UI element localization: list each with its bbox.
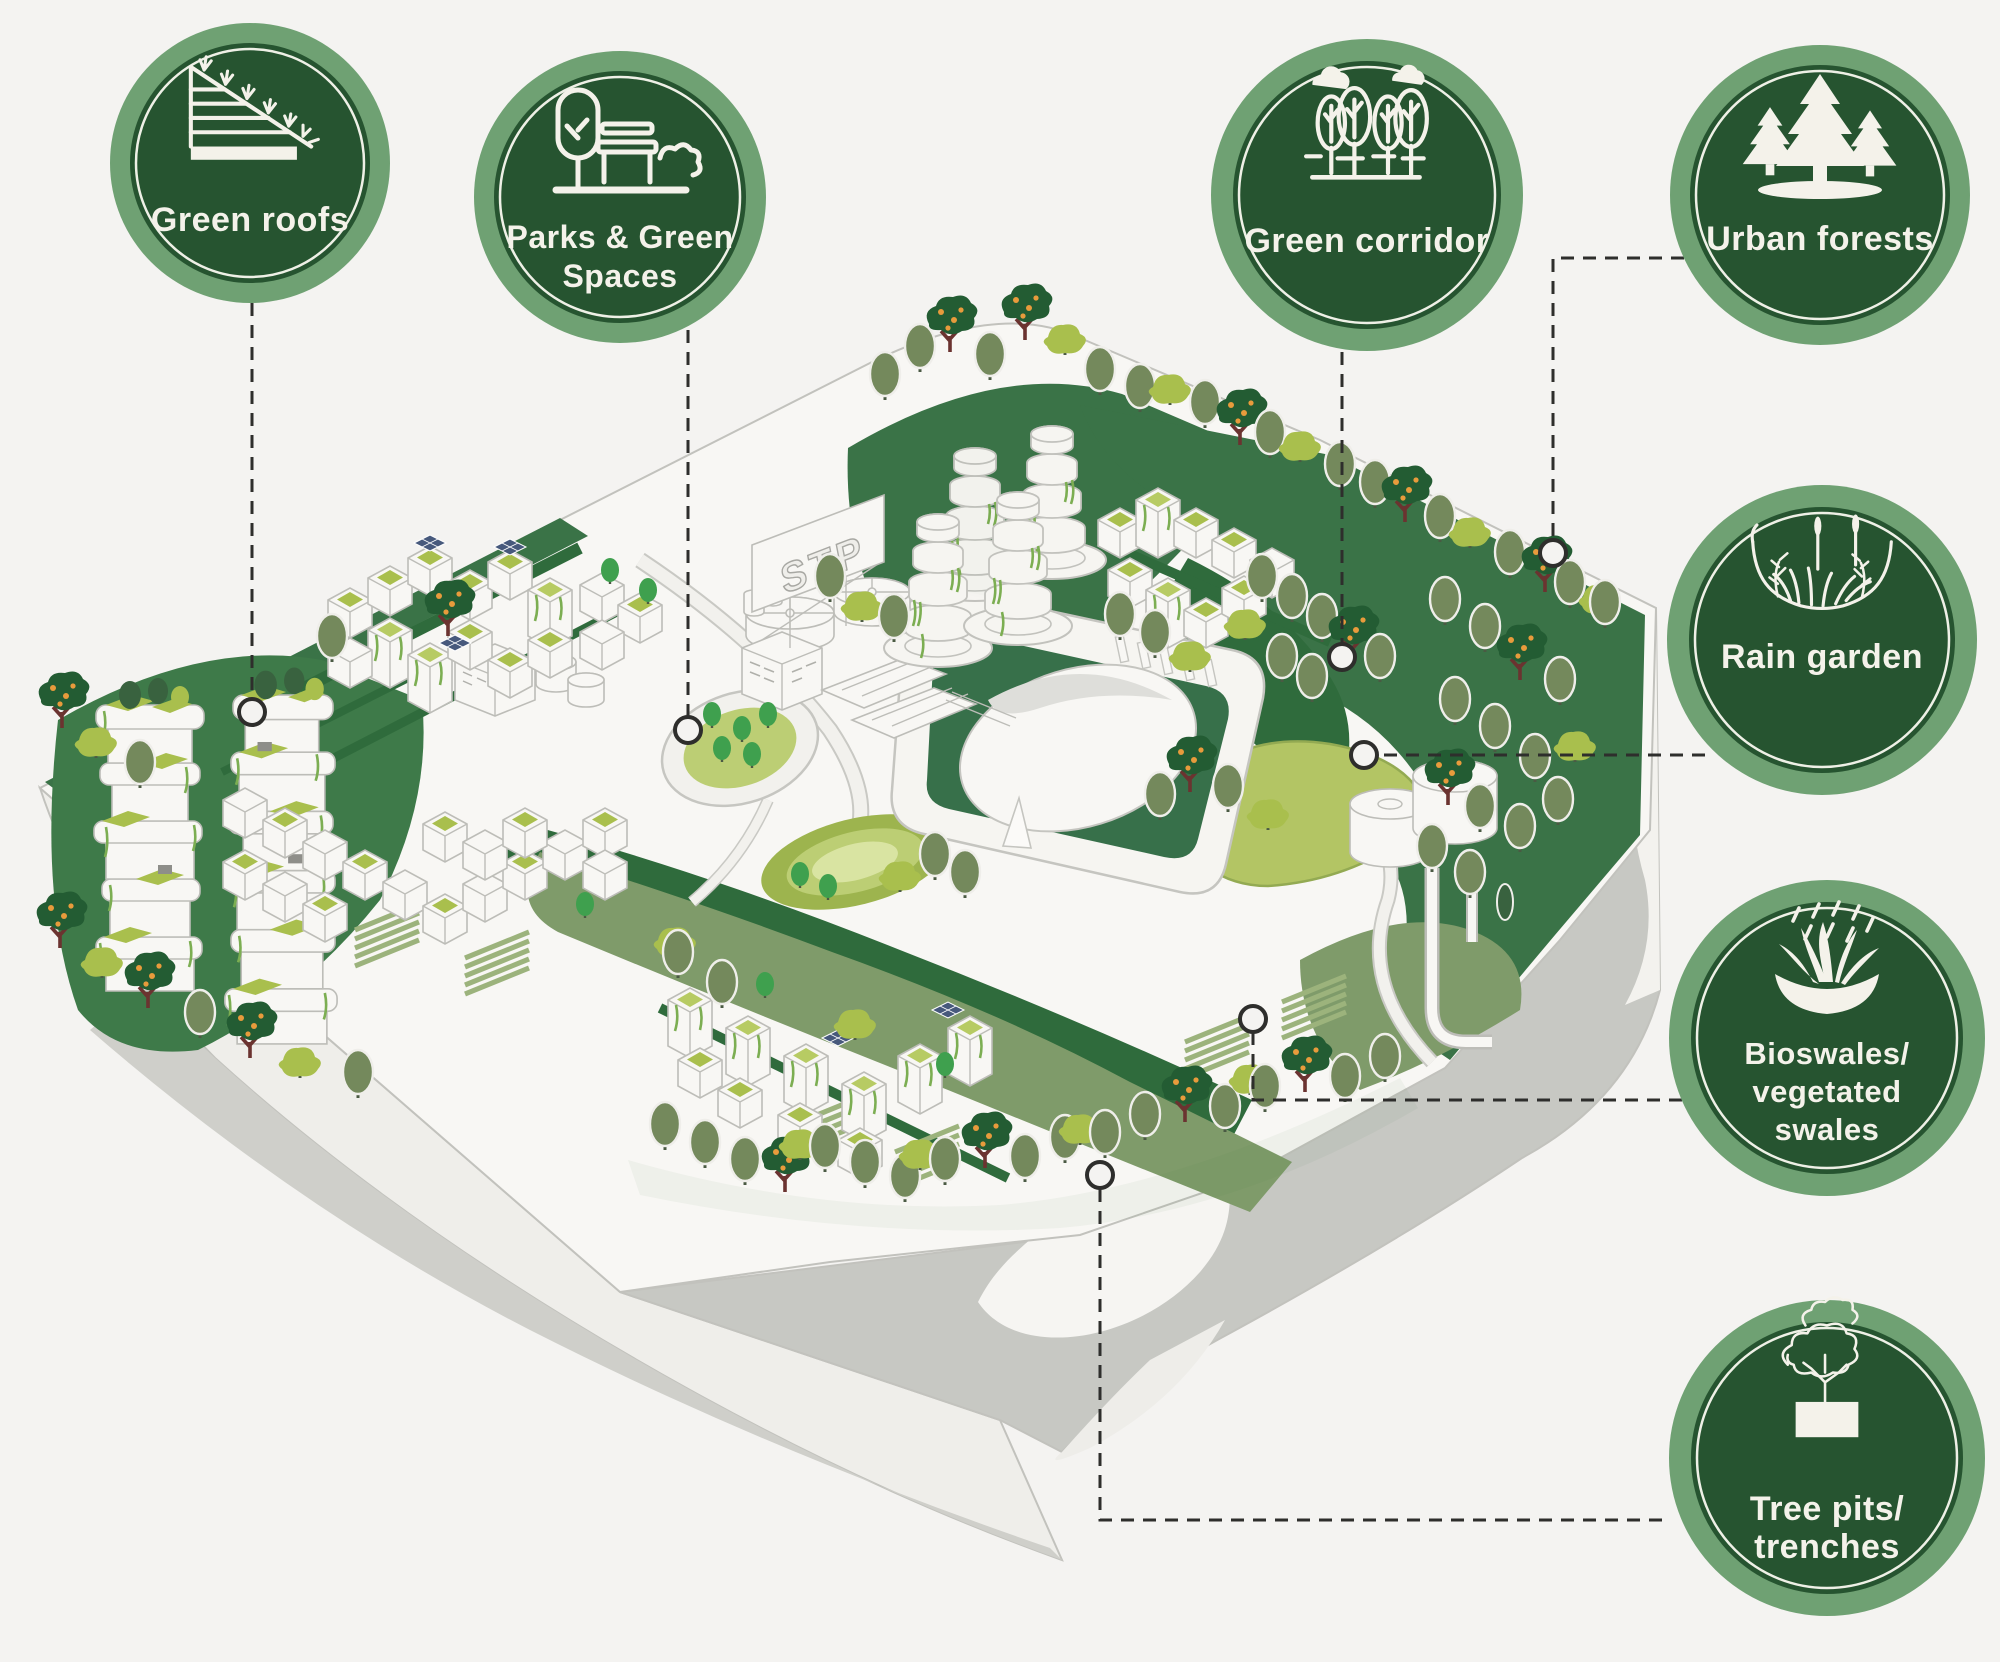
vf-tower xyxy=(94,678,204,991)
marker-parks xyxy=(675,717,701,743)
badge-label: Spaces xyxy=(562,258,677,294)
badge-label: Green corridor xyxy=(1244,222,1489,260)
badge-rain-garden: Rain garden xyxy=(1667,485,1977,795)
badge-green-roofs: Green roofs xyxy=(110,23,390,303)
scene: STP xyxy=(0,0,2000,1662)
badge-label: trenches xyxy=(1754,1528,1900,1566)
badge-label: Green roofs xyxy=(151,201,349,239)
marker-bioswales xyxy=(1240,1006,1266,1032)
badge-label: Rain garden xyxy=(1721,638,1923,676)
badge-bioswales: Bioswales/ vegetated swales xyxy=(1669,880,1985,1196)
badge-urban-forests: Urban forests xyxy=(1670,45,1970,345)
badge-parks-green-spaces: Parks & Green Spaces xyxy=(474,51,766,343)
marker-urban-forests xyxy=(1540,540,1566,566)
badge-green-corridor: Green corridor xyxy=(1211,39,1523,351)
badge-label: vegetated xyxy=(1752,1074,1901,1109)
marker-tree-pits xyxy=(1087,1162,1113,1188)
infographic-canvas: STP xyxy=(0,0,2000,1662)
marker-green-corridor xyxy=(1329,644,1355,670)
connector-urban-forests xyxy=(1553,258,1684,539)
badge-tree-pits: Tree pits/ trenches xyxy=(1669,1297,1985,1616)
badge-label: Bioswales/ xyxy=(1744,1036,1909,1071)
marker-green-roofs xyxy=(239,699,265,725)
badge-label: Tree pits/ xyxy=(1750,1490,1904,1528)
badge-label: Urban forests xyxy=(1706,220,1934,258)
badge-label: Parks & Green xyxy=(506,219,733,255)
badge-label: swales xyxy=(1775,1112,1880,1147)
marker-rain-garden xyxy=(1351,742,1377,768)
